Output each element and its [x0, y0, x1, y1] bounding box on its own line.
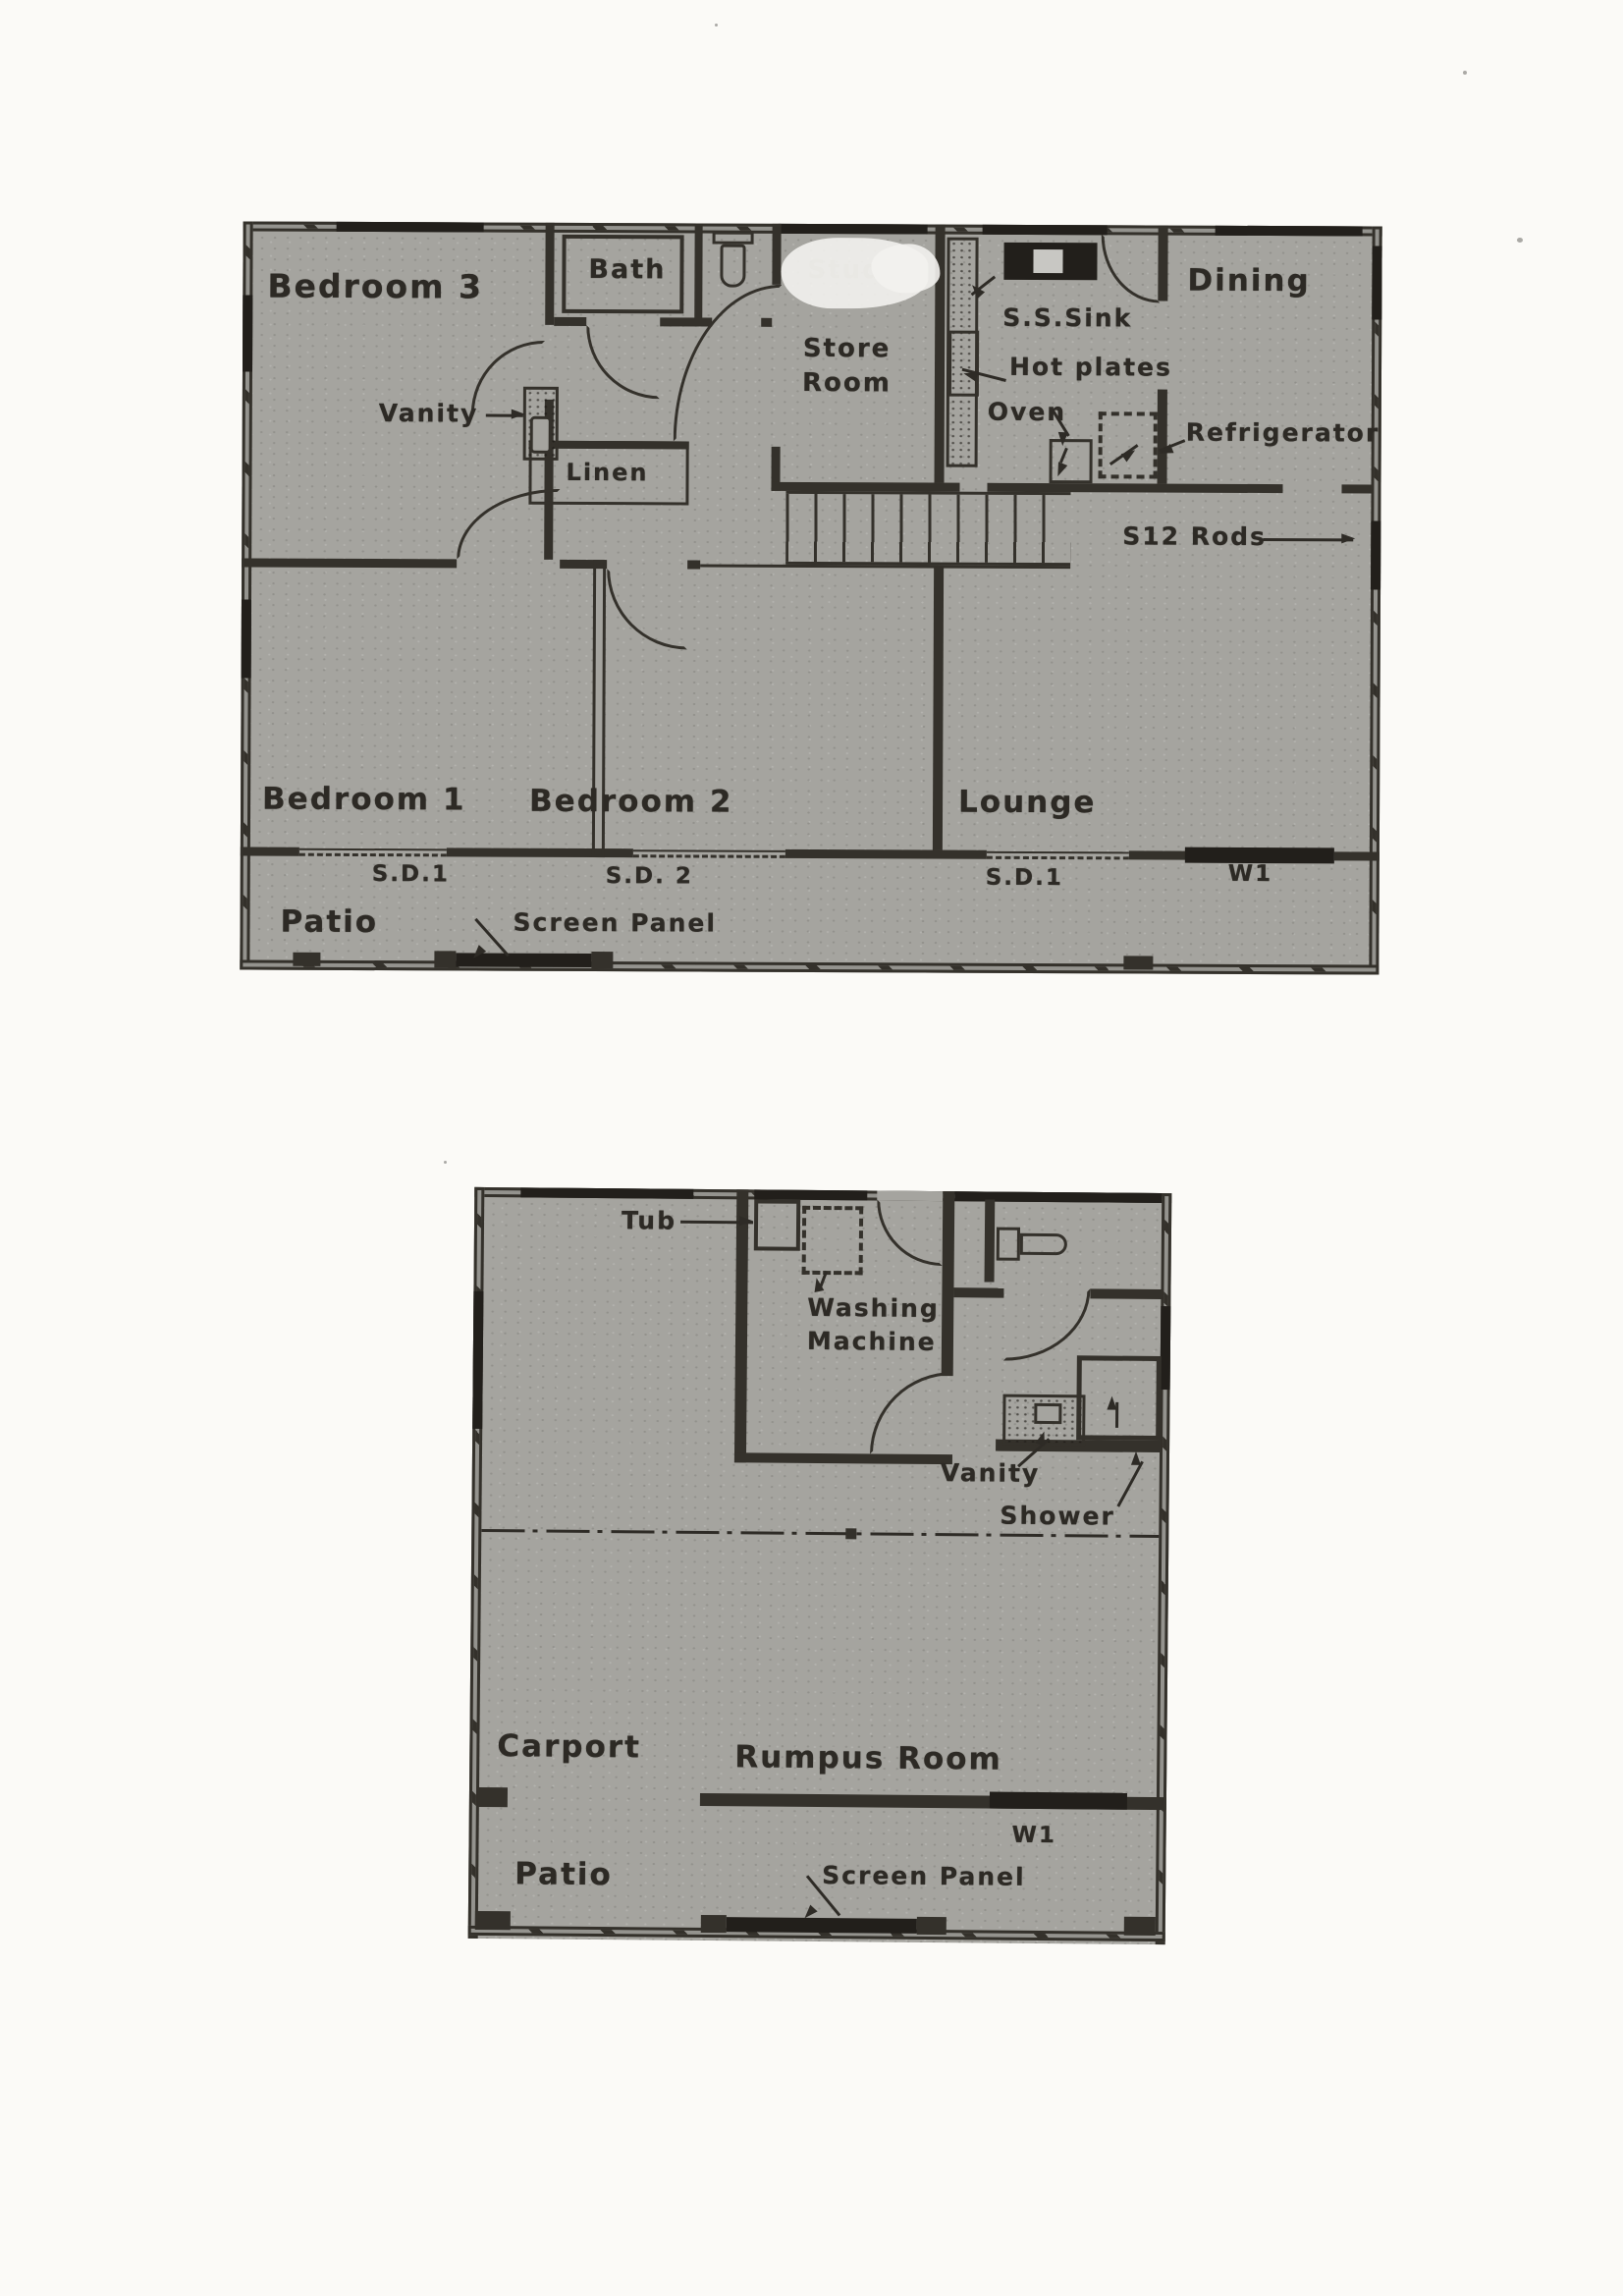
arrowhead [1107, 1396, 1116, 1410]
window [337, 222, 484, 233]
wall [447, 847, 633, 857]
vanity-basin [1034, 1403, 1061, 1424]
wall [933, 568, 944, 850]
sliding-door-track [987, 856, 1129, 860]
wall [942, 1191, 955, 1376]
lower-floor-plan: Tub Washing Machine Vanity Shower Carpor… [468, 1187, 1172, 1944]
sliding-door [299, 848, 447, 851]
door-arc [870, 1371, 953, 1454]
roof-line-dot [845, 1528, 856, 1539]
door-arc [607, 569, 687, 649]
window [1371, 520, 1380, 589]
post [434, 951, 456, 967]
label-washing-machine: Washing Machine [807, 1291, 936, 1359]
wall [694, 223, 702, 317]
vanity-basin [530, 416, 552, 454]
label-oven: Oven [988, 398, 1066, 426]
refrigerator-box [1099, 411, 1158, 478]
label-tub: Tub [622, 1206, 676, 1234]
post [475, 1911, 511, 1930]
wall [554, 317, 586, 326]
wall [687, 560, 700, 569]
sliding-door [633, 849, 785, 852]
label-sd2-bed2: S.D. 2 [606, 863, 693, 889]
sliding-door-track [633, 854, 785, 858]
post [591, 952, 613, 968]
wall [242, 558, 457, 568]
window [1216, 226, 1363, 237]
room-label-bedroom3: Bedroom 3 [267, 267, 483, 306]
window [520, 1187, 693, 1199]
room-label-lounge: Lounge [958, 785, 1097, 821]
label-hot-plates: Hot plates [1009, 353, 1172, 382]
washing-machine-box [802, 1206, 864, 1276]
post [1123, 956, 1153, 969]
post [917, 1917, 947, 1935]
wall [734, 1189, 748, 1462]
room-label-patio: Patio [514, 1856, 613, 1892]
whiteout-blob [871, 244, 940, 293]
label-refrigerator: Refrigerator [1186, 418, 1380, 448]
room-label-dining: Dining [1187, 263, 1310, 300]
leader-line [1116, 1461, 1143, 1507]
window [243, 295, 252, 371]
toilet-bowl [720, 245, 745, 288]
sliding-door-track [299, 853, 447, 857]
wall [734, 1452, 952, 1464]
post [293, 953, 320, 966]
staircase [785, 491, 1070, 566]
upper-floor-plan: Study Bedroom 3 Bath Store Room Dining B… [240, 221, 1381, 974]
arrowhead [1341, 533, 1355, 543]
arrowhead [739, 1216, 753, 1226]
label-sink: S.S.Sink [1002, 303, 1132, 333]
wall [1090, 1288, 1162, 1299]
wall [660, 317, 712, 326]
room-label-patio: Patio [280, 904, 378, 940]
window [472, 1291, 483, 1429]
room-label-carport: Carport [497, 1728, 641, 1765]
wall [1334, 851, 1380, 860]
wall [985, 1199, 996, 1282]
post [478, 1787, 508, 1807]
scanned-floor-plan-page: Study Bedroom 3 Bath Store Room Dining B… [0, 0, 1623, 2296]
room-label-bath: Bath [588, 254, 666, 285]
arrowhead [1057, 432, 1068, 446]
label-s12-rods: S12 Rods [1122, 521, 1267, 551]
oven-box [1050, 439, 1093, 483]
wall [785, 849, 987, 859]
post [1124, 1917, 1156, 1936]
door-arc [586, 325, 660, 399]
label-w1: W1 [1012, 1823, 1057, 1848]
label-linen: Linen [566, 459, 648, 486]
wall [772, 224, 781, 285]
scan-speck [444, 1161, 447, 1164]
window [1161, 1306, 1171, 1390]
door-arc [1003, 1288, 1091, 1362]
shower [1076, 1355, 1162, 1441]
wall [1369, 226, 1381, 974]
toilet-bowl [1020, 1233, 1067, 1255]
window [983, 225, 1108, 236]
label-vanity: Vanity [941, 1458, 1041, 1488]
door-arc [1101, 234, 1160, 302]
wall [953, 1287, 1003, 1297]
label-sd1-bed1: S.D.1 [372, 861, 450, 887]
sliding-door [987, 851, 1129, 854]
window [242, 599, 251, 678]
label-shower: Shower [1000, 1502, 1115, 1531]
door-arc [457, 488, 560, 559]
door-arc [877, 1199, 944, 1266]
scan-speck [1517, 238, 1523, 243]
toilet-cistern [713, 232, 754, 245]
room-label-bedroom2: Bedroom 2 [529, 784, 733, 820]
label-sd1-lounge: S.D.1 [986, 865, 1063, 891]
stove-plate [1033, 249, 1062, 273]
door-arc [674, 284, 783, 441]
wall [1158, 390, 1167, 484]
label-screen-panel: Screen Panel [822, 1861, 1026, 1891]
wall [1129, 850, 1187, 859]
wall [241, 847, 299, 855]
wall [545, 223, 554, 325]
window [1372, 246, 1381, 319]
room-label-rumpus: Rumpus Room [734, 1739, 1002, 1777]
leader-line [1263, 538, 1353, 541]
wall [240, 959, 1379, 974]
window-w1 [990, 1792, 1127, 1810]
label-vanity: Vanity [379, 399, 479, 427]
roof-line [481, 1529, 1159, 1538]
cupboard [948, 331, 979, 397]
room-label-bedroom1: Bedroom 1 [262, 782, 466, 818]
label-screen-panel: Screen Panel [513, 908, 717, 938]
arrowhead [1131, 1451, 1141, 1465]
arrowhead [512, 410, 525, 419]
toilet-cistern [997, 1228, 1020, 1261]
wall [1341, 484, 1372, 493]
label-w1: W1 [1228, 861, 1272, 887]
room-label-store-room: Store Room [790, 332, 903, 402]
laundry-tub [754, 1199, 800, 1250]
scan-speck [715, 24, 718, 27]
post [701, 1915, 727, 1933]
screen-panel-strip [727, 1917, 917, 1934]
scan-speck [1463, 71, 1467, 75]
window [779, 224, 928, 235]
